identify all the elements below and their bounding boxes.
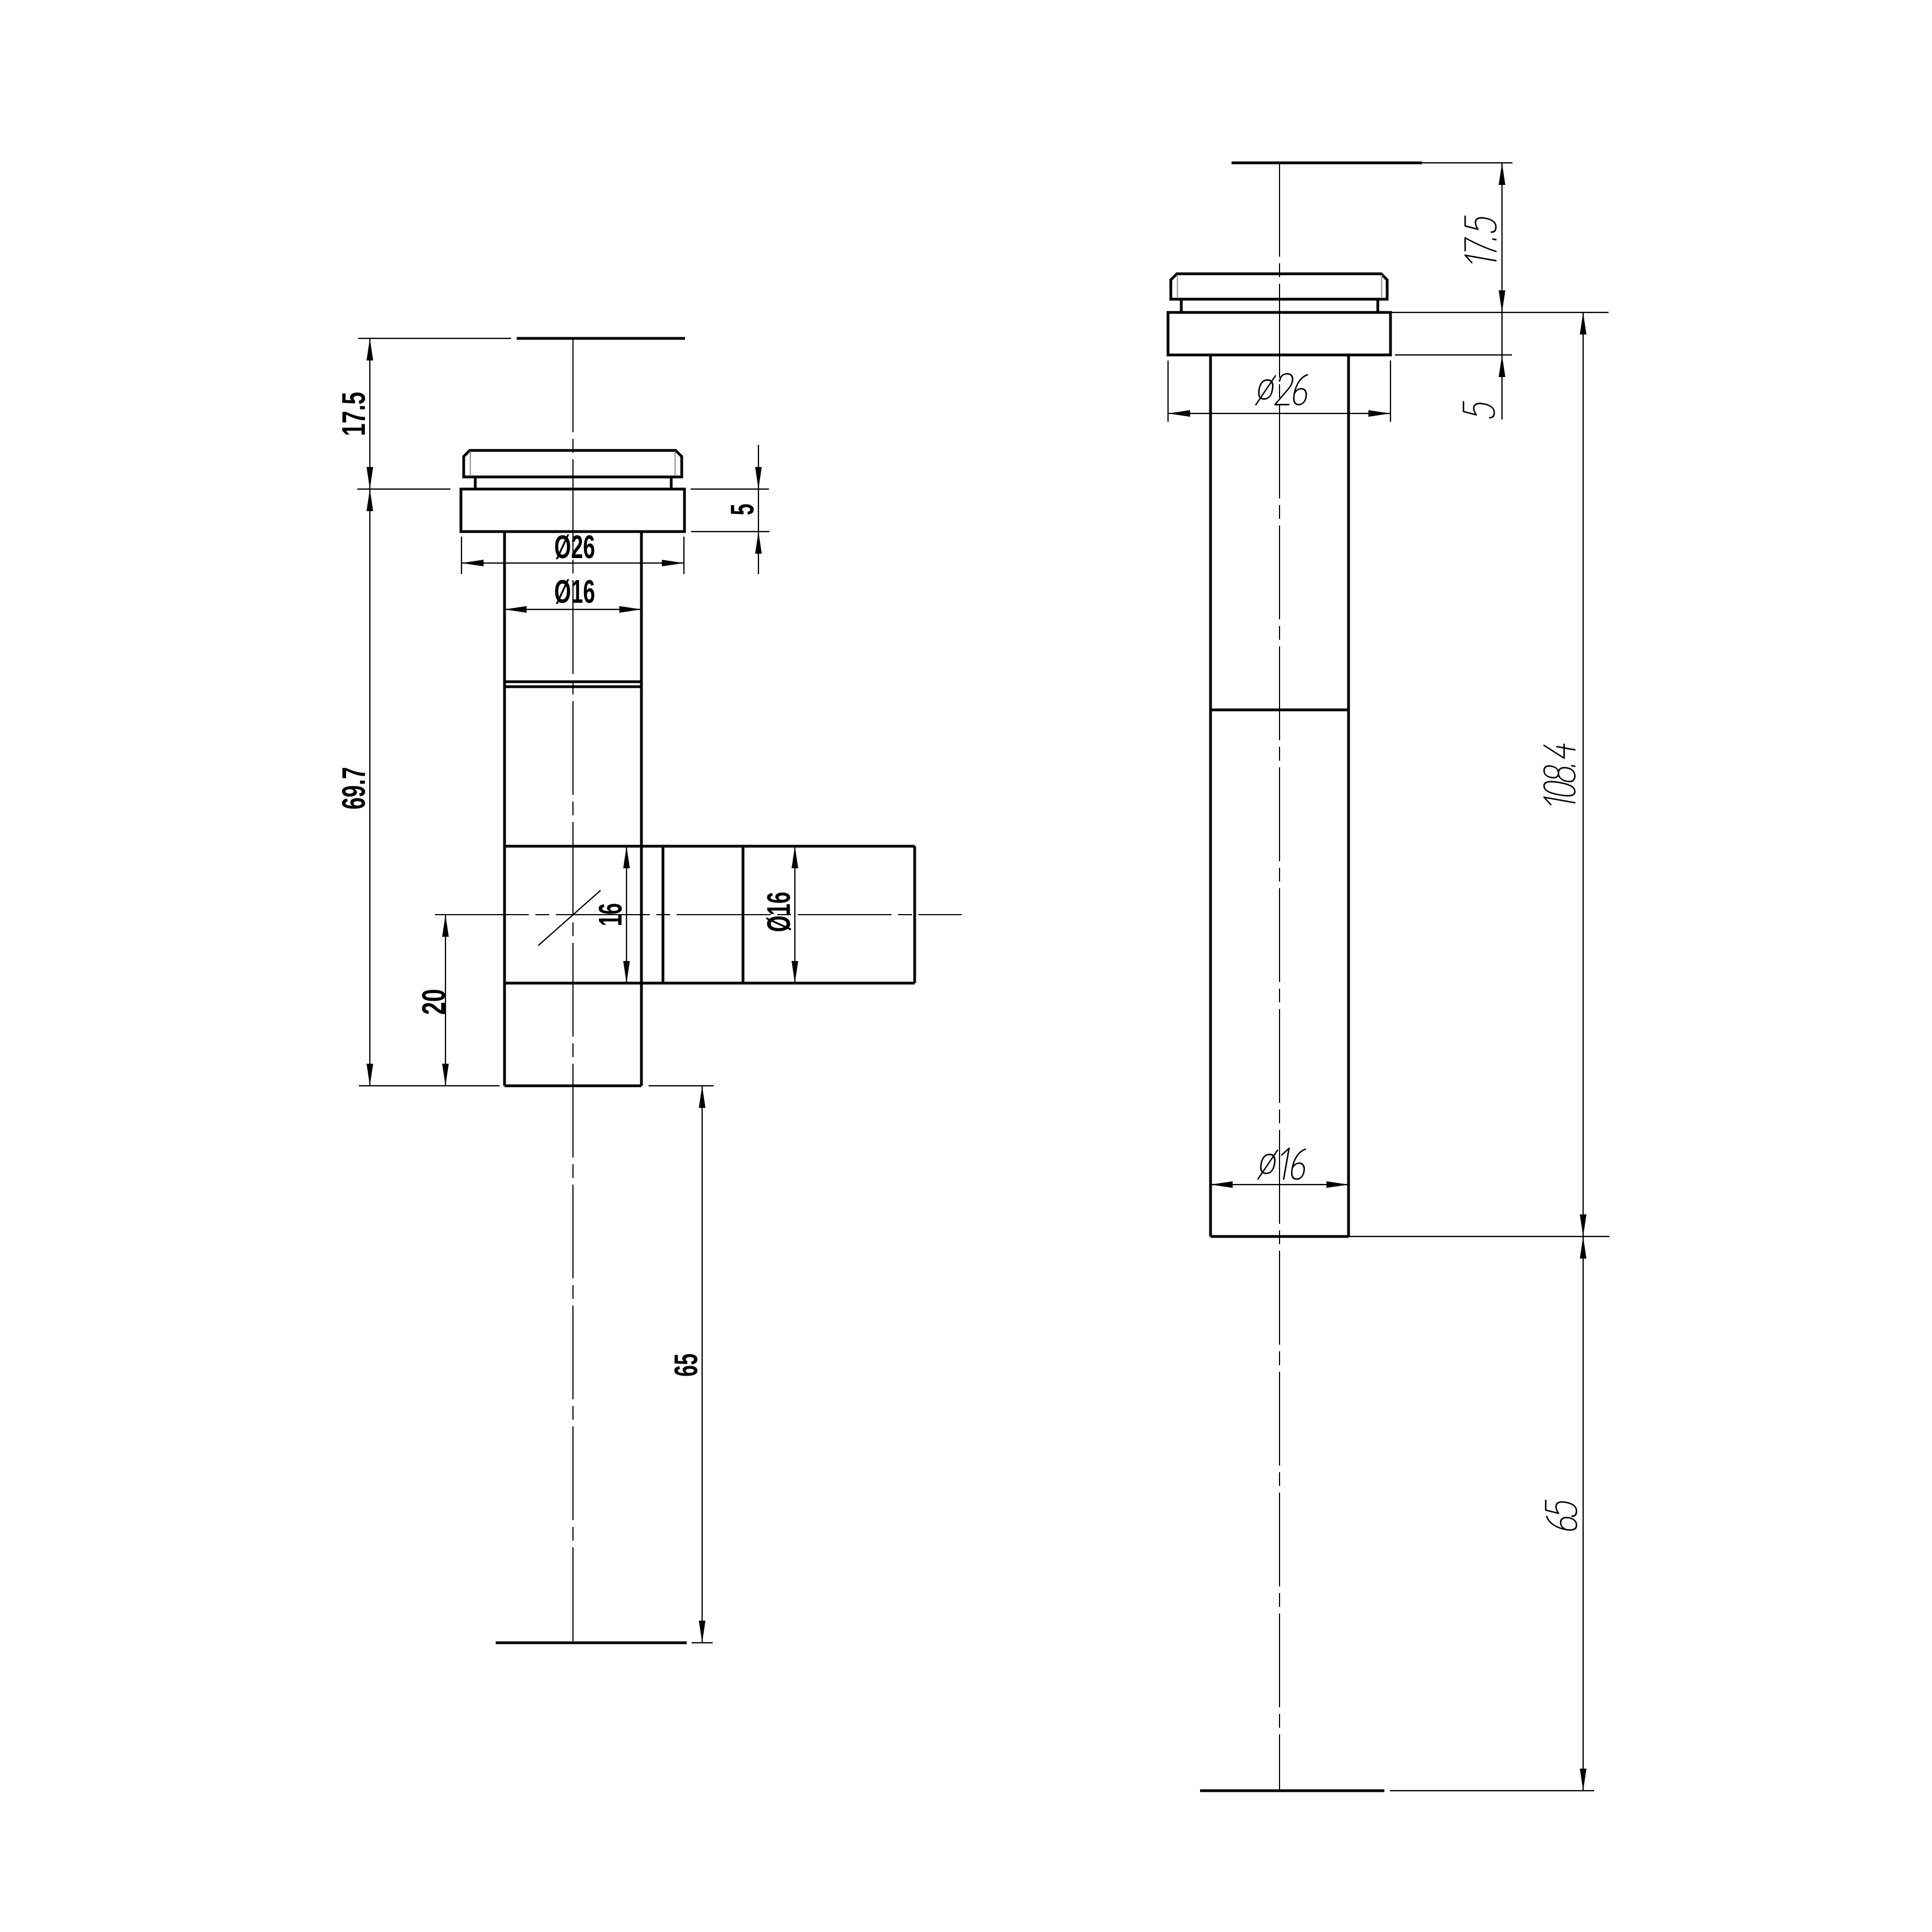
svg-text:17.5: 17.5: [336, 392, 372, 436]
svg-text:20: 20: [416, 989, 452, 1015]
svg-text:Ø26: Ø26: [554, 529, 595, 565]
svg-text:Ø16: Ø16: [554, 574, 595, 610]
svg-text:Ø16: Ø16: [761, 892, 797, 932]
svg-text:16: 16: [592, 903, 629, 926]
svg-text:5: 5: [724, 504, 761, 516]
svg-text:69.7: 69.7: [336, 767, 372, 810]
svg-text:65: 65: [668, 1354, 704, 1377]
